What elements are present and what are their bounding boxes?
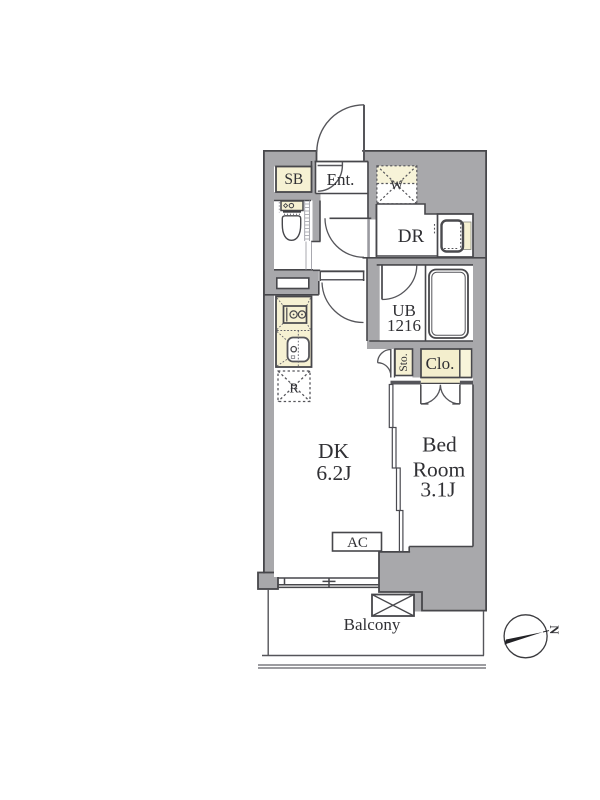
svg-text:Bed: Bed — [422, 433, 457, 457]
svg-text:DR: DR — [398, 226, 425, 247]
svg-text:W: W — [390, 178, 403, 193]
svg-text:AC: AC — [347, 535, 368, 551]
svg-text:Balcony: Balcony — [344, 615, 401, 634]
svg-text:Ent.: Ent. — [327, 170, 355, 189]
svg-text:DK: DK — [318, 439, 350, 463]
svg-text:Clo.: Clo. — [426, 354, 455, 373]
svg-text:6.2J: 6.2J — [316, 461, 351, 485]
svg-text:1216: 1216 — [387, 316, 421, 335]
svg-text:3.1J: 3.1J — [420, 478, 455, 502]
svg-text:SB: SB — [284, 171, 303, 188]
svg-text:N: N — [547, 625, 561, 634]
svg-text:R: R — [289, 382, 299, 397]
svg-text:Sto.: Sto. — [398, 353, 410, 371]
